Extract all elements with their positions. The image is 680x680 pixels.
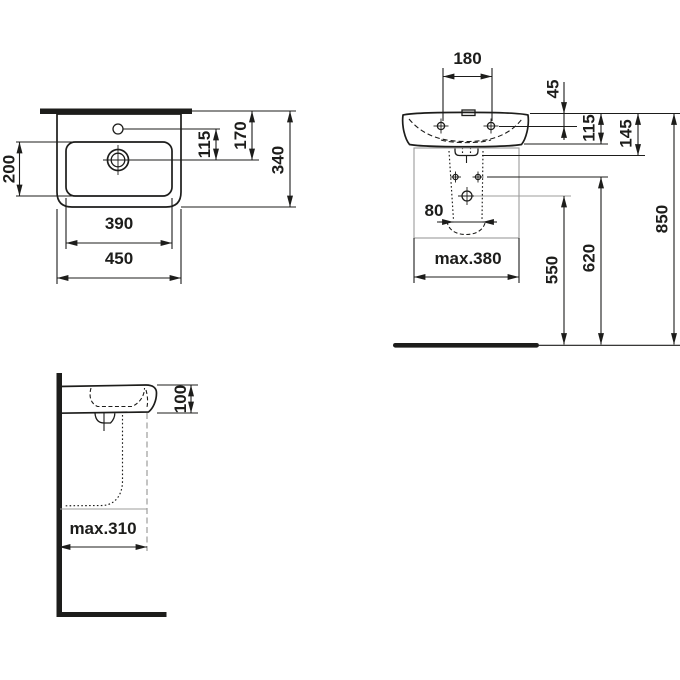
floor-line [57,612,167,617]
dim-label-550: 550 [542,256,561,284]
dim-label-450: 450 [105,249,133,268]
dim-label-max380: max.380 [434,249,501,268]
floor-line [393,343,539,348]
dim-label-145: 145 [616,119,635,147]
drain-outlet-hole [458,187,476,205]
fixing-hole-left [450,172,461,183]
inner-rim-hidden-edge [409,119,522,142]
overflow-hole [113,124,123,134]
dim-label-100: 100 [171,385,190,413]
dim-label-45: 45 [543,80,562,99]
wall-line [57,373,63,616]
drawing-canvas: 115 170 340 200 390 450 [0,0,680,680]
basin-side-profile [59,385,157,413]
mounting-hole-right [484,119,499,134]
bowl-hidden-contour [90,388,144,407]
dim-label-170: 170 [231,121,250,149]
basin-front-outline [403,112,529,146]
front-view: 180 45 115 145 80 max.380 550 620 850 [393,49,680,348]
dim-label-115: 115 [195,131,214,158]
dim-label-340: 340 [268,146,287,174]
siphon-bottom-hidden-arc [447,221,486,235]
washbasin-technical-drawing: 115 170 340 200 390 450 [0,0,680,680]
dim-label-850: 850 [652,205,671,233]
dim-label-80: 80 [425,201,444,220]
dim-label-max310: max.310 [69,519,136,538]
fixing-hole-right [473,172,484,183]
dim-label-200: 200 [0,155,18,183]
dim-label-620: 620 [579,244,598,272]
top-view: 115 170 340 200 390 450 [0,109,296,285]
siphon-hidden-line [449,151,454,220]
mounting-hole-left [434,119,449,134]
siphon-hidden-contour [64,415,123,506]
front-hidden-edge [146,390,148,409]
side-view: 100 max.310 [57,373,199,617]
siphon-hidden-line [482,151,483,220]
dim-label-390: 390 [105,214,133,233]
dim-label-180: 180 [453,49,481,68]
dim-label-115: 115 [579,114,598,141]
drain-flange-side [95,413,115,423]
